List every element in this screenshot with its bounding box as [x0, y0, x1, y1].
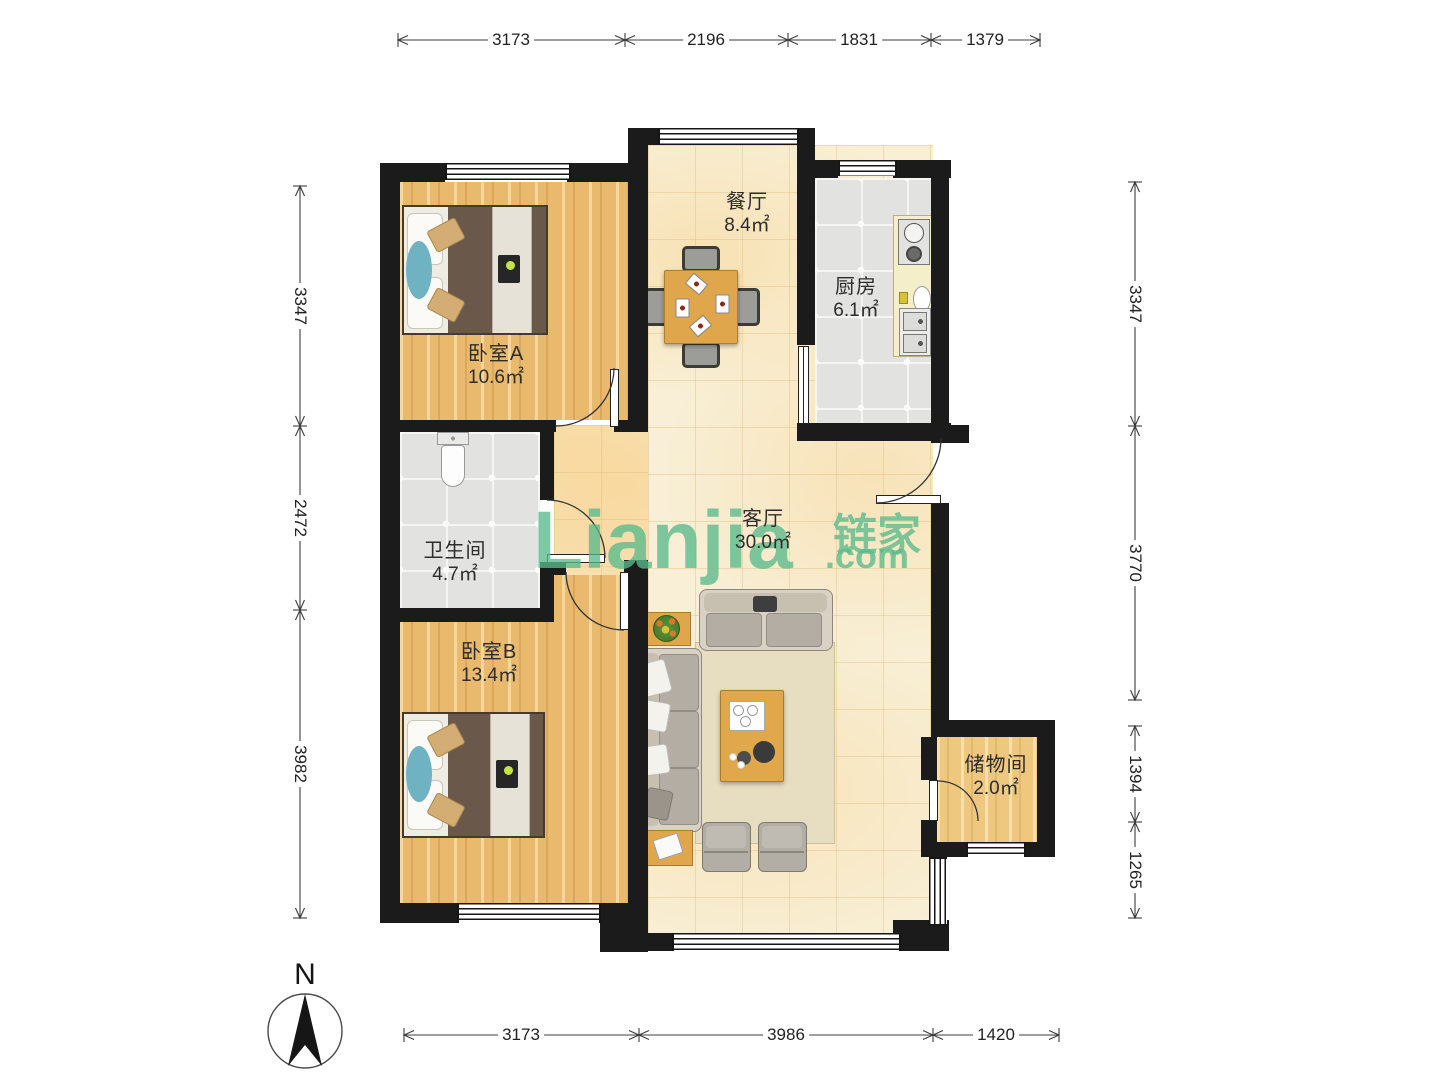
wall: [921, 820, 937, 844]
room-label-storage: 储物间 2.0㎡: [965, 754, 1028, 800]
compass-arrow: [288, 994, 322, 1066]
bed-a: [402, 205, 548, 335]
tea-dot: [729, 753, 737, 761]
sofa-cushion: [766, 613, 822, 647]
room-label-living: 客厅 30.0㎡: [735, 508, 791, 554]
room-area: 6.1㎡: [833, 299, 878, 322]
window: [838, 160, 897, 176]
coffee-table: [720, 690, 784, 782]
toilet-bowl: [441, 445, 465, 487]
room-name: 客厅: [735, 508, 791, 531]
wall: [648, 128, 658, 145]
room-area: 4.7㎡: [424, 563, 487, 586]
sink-basin: [903, 312, 927, 331]
window: [445, 163, 571, 180]
floor-plan: Lianjia 链家 .com 餐厅 8.4㎡ 厨房 6.1㎡ 卧室A 10.6…: [0, 0, 1440, 1080]
stool-seam: [760, 851, 804, 853]
window: [929, 857, 947, 926]
window: [457, 903, 601, 923]
wall: [380, 608, 554, 622]
room-area: 10.6㎡: [468, 366, 524, 389]
dim-right-1: 3347: [1125, 281, 1145, 327]
place-setting: [716, 295, 730, 314]
wall: [600, 903, 648, 952]
bed-b: [402, 712, 545, 838]
bed-b-rug: [406, 746, 432, 802]
stove-burner: [904, 223, 924, 243]
stool-top: [762, 826, 802, 848]
room-area: 8.4㎡: [724, 214, 769, 237]
wall: [931, 160, 949, 443]
cutting-board: [899, 292, 908, 304]
room-label-dining: 餐厅 8.4㎡: [724, 191, 769, 237]
bed-b-tablet-dot: [504, 766, 513, 775]
toilet-tank: [437, 432, 469, 445]
dim-left-3: 3982: [290, 741, 310, 787]
room-label-bedroom-a: 卧室A 10.6㎡: [468, 343, 524, 389]
wall: [380, 163, 445, 182]
dim-top-4: 1379: [962, 30, 1008, 50]
stool-seam: [704, 851, 748, 853]
tea-dot: [737, 761, 745, 769]
stool: [702, 822, 751, 872]
bed-a-tablet-dot: [506, 261, 515, 270]
sofa-top: [699, 589, 833, 651]
dining-table: [664, 270, 738, 344]
kettle: [753, 741, 775, 763]
wall: [931, 503, 949, 731]
door-bedroom-a: [610, 369, 619, 427]
wall: [648, 933, 674, 951]
dining-chair: [682, 246, 720, 272]
window: [658, 128, 799, 145]
wall: [797, 128, 815, 345]
dim-bottom-2: 3986: [763, 1025, 809, 1045]
compass-north-label: N: [294, 958, 316, 992]
wall: [628, 128, 648, 425]
wall: [815, 160, 838, 178]
room-area: 30.0㎡: [735, 531, 791, 554]
place-setting: [689, 315, 713, 338]
dim-right-2: 3770: [1125, 540, 1145, 586]
dim-bottom-3: 1420: [973, 1025, 1019, 1045]
place-setting: [676, 299, 690, 318]
room-name: 储物间: [965, 754, 1028, 777]
sofa-pillow: [753, 596, 777, 612]
dim-left-1: 3347: [290, 283, 310, 329]
wall: [797, 423, 951, 441]
tea-cup: [733, 705, 744, 716]
room-label-bedroom-b: 卧室B 13.4㎡: [461, 641, 517, 687]
door-kitchen-slider: [798, 346, 809, 424]
tea-cup: [740, 716, 751, 727]
bed-a-rug: [406, 241, 432, 299]
wall: [921, 842, 966, 857]
window: [966, 842, 1026, 857]
stove-burner: [906, 246, 922, 262]
wall: [614, 420, 648, 432]
room-label-bathroom: 卫生间 4.7㎡: [424, 540, 487, 586]
dim-right-4: 1265: [1125, 847, 1145, 893]
room-name: 卫生间: [424, 540, 487, 563]
wall: [380, 420, 556, 432]
wall: [540, 420, 554, 500]
wall: [628, 560, 648, 903]
dim-top-2: 2196: [683, 30, 729, 50]
compass-circle: [268, 994, 342, 1068]
dim-right-3: 1394: [1125, 751, 1145, 797]
room-name: 餐厅: [724, 191, 769, 214]
plant: [653, 615, 680, 642]
room-name: 卧室A: [468, 343, 524, 366]
dim-top-1: 3173: [488, 30, 534, 50]
room-area: 13.4㎡: [461, 664, 517, 687]
dim-top-3: 1831: [836, 30, 882, 50]
tea-cup: [747, 705, 758, 716]
wall: [380, 163, 400, 923]
wall: [921, 737, 937, 780]
stool: [758, 822, 807, 872]
room-name: 厨房: [833, 276, 878, 299]
door-storage: [929, 780, 938, 821]
stool-top: [706, 826, 746, 848]
wall: [1037, 720, 1055, 857]
wall: [567, 163, 628, 182]
sink-basin: [903, 334, 927, 353]
wall: [380, 903, 457, 923]
room-area: 2.0㎡: [965, 777, 1028, 800]
room-name: 卧室B: [461, 641, 517, 664]
wall: [949, 425, 969, 443]
watermark-domain: .com: [825, 535, 909, 577]
dim-bottom-1: 3173: [498, 1025, 544, 1045]
window: [672, 933, 901, 951]
dining-chair: [682, 342, 720, 368]
place-setting: [685, 273, 709, 296]
sofa-cushion: [706, 613, 762, 647]
dim-left-2: 2472: [290, 495, 310, 541]
room-label-kitchen: 厨房 6.1㎡: [833, 276, 878, 322]
